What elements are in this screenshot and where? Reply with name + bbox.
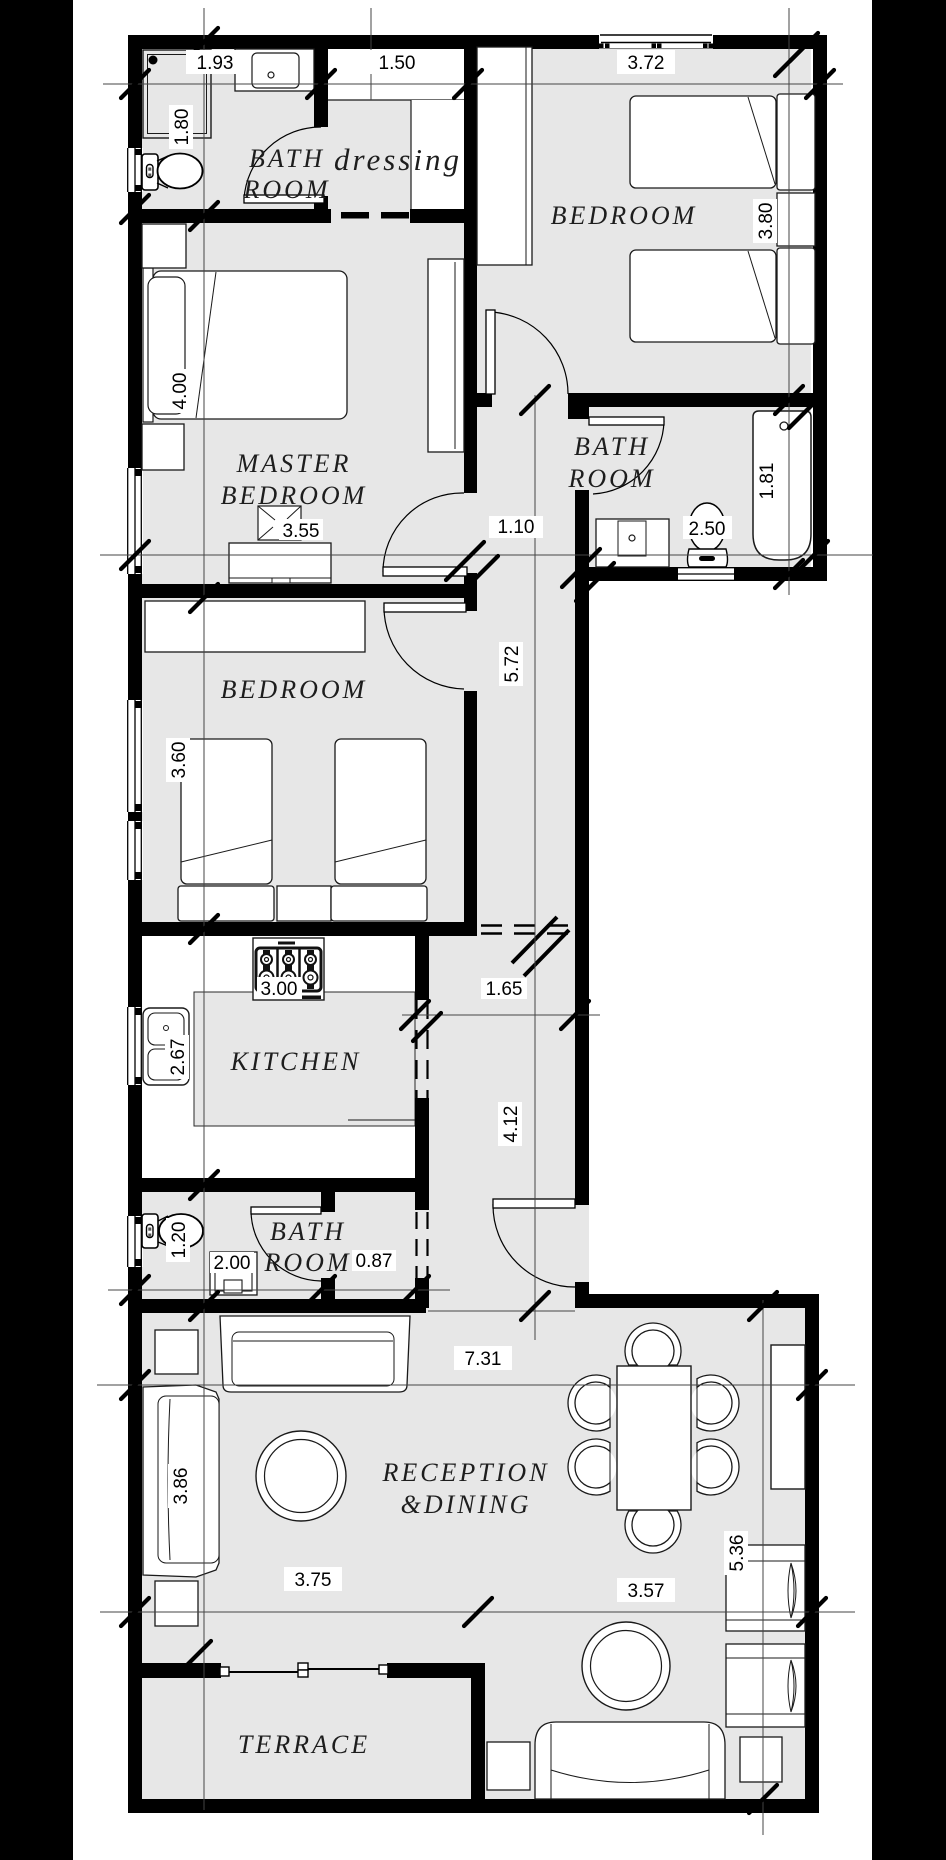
svg-text:1.93: 1.93 <box>197 53 234 74</box>
svg-text:KITCHEN: KITCHEN <box>230 1047 362 1076</box>
svg-text:BATH: BATH <box>574 432 650 461</box>
svg-text:MASTER: MASTER <box>236 449 352 478</box>
svg-text:1.20: 1.20 <box>169 1222 190 1259</box>
svg-text:RECEPTION: RECEPTION <box>381 1458 549 1487</box>
svg-text:3.80: 3.80 <box>756 203 777 240</box>
svg-text:TERRACE: TERRACE <box>238 1730 370 1759</box>
svg-text:2.00: 2.00 <box>214 1253 251 1274</box>
svg-text:4.12: 4.12 <box>501 1106 522 1143</box>
svg-text:ROOM: ROOM <box>567 464 655 493</box>
svg-text:1.65: 1.65 <box>486 979 523 1000</box>
svg-text:4.00: 4.00 <box>170 373 191 410</box>
svg-text:&DINING: &DINING <box>401 1490 532 1519</box>
svg-text:1.50: 1.50 <box>379 53 416 74</box>
svg-text:1.81: 1.81 <box>757 463 778 500</box>
svg-text:0.87: 0.87 <box>356 1251 393 1272</box>
svg-text:3.57: 3.57 <box>628 1581 665 1602</box>
svg-text:BATH: BATH <box>270 1217 346 1246</box>
svg-text:BEDROOM: BEDROOM <box>221 675 368 704</box>
svg-text:BEDROOM: BEDROOM <box>221 481 368 510</box>
svg-text:3.86: 3.86 <box>171 1468 192 1505</box>
svg-text:BEDROOM: BEDROOM <box>551 201 698 230</box>
svg-text:ROOM: ROOM <box>263 1248 351 1277</box>
svg-text:5.36: 5.36 <box>727 1535 748 1572</box>
svg-text:3.60: 3.60 <box>169 742 190 779</box>
svg-text:BATH: BATH <box>249 144 325 173</box>
svg-text:2.67: 2.67 <box>168 1039 189 1076</box>
svg-text:1.10: 1.10 <box>498 517 535 538</box>
svg-text:1.80: 1.80 <box>172 109 193 146</box>
svg-text:3.55: 3.55 <box>283 521 320 542</box>
svg-text:5.72: 5.72 <box>502 646 523 683</box>
svg-text:2.50: 2.50 <box>689 519 726 540</box>
svg-text:3.75: 3.75 <box>295 1570 332 1591</box>
svg-text:3.00: 3.00 <box>261 979 298 1000</box>
svg-text:ROOM: ROOM <box>242 175 330 204</box>
svg-text:dressing: dressing <box>334 142 462 177</box>
svg-text:3.72: 3.72 <box>628 53 665 74</box>
svg-text:7.31: 7.31 <box>465 1349 502 1370</box>
